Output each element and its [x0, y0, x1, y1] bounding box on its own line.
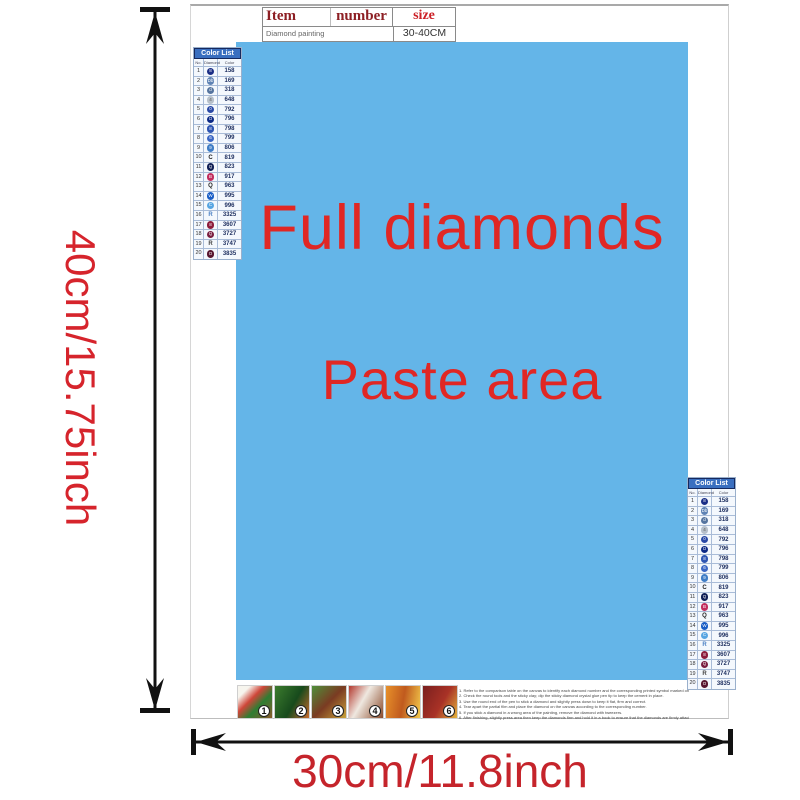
color-row-number: 7	[688, 555, 698, 564]
item-table-col-size: size	[393, 8, 455, 26]
diamond-color-dot-icon: O	[207, 116, 215, 124]
color-row-symbol-cell: Q	[204, 182, 218, 191]
canvas-sheet: Item number size Diamond painting 30-40C…	[190, 4, 729, 719]
color-row-code: 3747	[712, 671, 735, 677]
color-row-symbol-cell: Db	[698, 507, 712, 516]
color-list-col-color: Color	[218, 59, 241, 66]
step-thumbnail-image: 1	[237, 685, 273, 719]
color-row-number: 3	[194, 86, 204, 95]
item-table-col-number: number	[331, 8, 393, 26]
color-list-row: 12 B 917	[194, 173, 241, 183]
diamond-color-dot-icon: Q	[207, 231, 215, 239]
color-list-row: 7 8 798	[688, 555, 735, 565]
step-thumbnail-image: 4	[348, 685, 384, 719]
diamond-color-dot-icon: Db	[701, 507, 709, 515]
color-list-title: Color List	[194, 48, 241, 59]
color-list-row: 13 Q 963	[194, 182, 241, 192]
color-row-symbol-cell: R	[204, 240, 218, 249]
color-list-col-diamond: Diamond	[204, 59, 218, 66]
color-row-number: 10	[688, 583, 698, 592]
color-list-row: 5 0 792	[688, 535, 735, 545]
color-row-code: 3747	[218, 241, 241, 247]
color-row-symbol-cell: O	[698, 679, 712, 689]
step-number-badge: 3	[332, 705, 344, 717]
paste-area-title: Full diamonds	[236, 192, 688, 264]
color-row-symbol-cell: d	[204, 86, 218, 95]
color-row-number: 9	[194, 144, 204, 153]
diamond-color-dot-icon: 9	[207, 144, 215, 152]
diamond-symbol-letter: R	[208, 241, 212, 247]
color-row-number: 18	[688, 660, 698, 669]
diamond-color-dot-icon: 8	[701, 651, 709, 659]
color-row-number: 9	[688, 574, 698, 583]
color-row-symbol-cell: 8	[204, 67, 218, 76]
color-list-row: 20 O 3835	[194, 249, 241, 259]
color-list-columns: No. Diamond Color	[194, 59, 241, 67]
color-row-number: 3	[688, 516, 698, 525]
color-row-code: 3835	[712, 681, 735, 687]
color-row-code: 169	[218, 78, 241, 84]
color-row-code: 963	[218, 183, 241, 189]
color-row-symbol-cell: C	[204, 153, 218, 162]
color-row-code: 823	[218, 164, 241, 170]
color-row-symbol-cell: W	[204, 192, 218, 201]
color-row-number: 6	[194, 115, 204, 124]
color-row-symbol-cell: Db	[204, 77, 218, 86]
color-row-number: 19	[688, 670, 698, 679]
color-row-number: 15	[688, 631, 698, 640]
color-row-symbol-cell: Q	[698, 660, 712, 669]
color-row-symbol-cell: 9	[698, 574, 712, 583]
color-row-code: 819	[218, 155, 241, 161]
diamond-color-dot-icon: 0	[701, 536, 709, 544]
diamond-color-dot-icon: O	[207, 250, 215, 258]
color-list-row: 11 Q 823	[688, 593, 735, 603]
step-number-badge: 5	[406, 705, 418, 717]
color-list-col-diamond: Diamond	[698, 489, 712, 496]
color-list-row: 1 8 158	[688, 497, 735, 507]
instruction-text-block: 1. Refer to the comparison table on the …	[459, 688, 689, 721]
paste-area: Full diamonds Paste area	[236, 42, 688, 680]
step-thumbnail-image: 2	[274, 685, 310, 719]
color-row-code: 3727	[712, 661, 735, 667]
step-number-badge: 4	[369, 705, 381, 717]
diamond-color-dot-icon: O	[701, 546, 709, 554]
color-list-row: 14 W 995	[688, 622, 735, 632]
color-list-row: 2 Db 169	[194, 77, 241, 87]
color-list-row: 6 O 796	[688, 545, 735, 555]
color-row-symbol-cell: R	[204, 211, 218, 220]
color-row-code: 169	[712, 508, 735, 514]
color-row-symbol-cell: 8	[698, 497, 712, 506]
diamond-color-dot-icon: 4	[207, 96, 215, 104]
color-row-code: 917	[218, 174, 241, 180]
color-row-number: 13	[688, 612, 698, 621]
color-row-number: 11	[194, 163, 204, 172]
item-table-header: Item number size	[263, 8, 455, 27]
color-row-code: 3607	[218, 222, 241, 228]
color-row-symbol-cell: C	[204, 201, 218, 210]
color-row-number: 1	[194, 67, 204, 76]
color-row-code: 995	[218, 193, 241, 199]
diamond-color-dot-icon: 6	[701, 565, 709, 573]
color-list-row: 4 4 648	[194, 96, 241, 106]
diamond-symbol-letter: C	[208, 155, 212, 161]
color-row-code: 158	[712, 498, 735, 504]
color-row-number: 4	[688, 526, 698, 535]
color-list-row: 17 8 3607	[688, 651, 735, 661]
diamond-color-dot-icon: B	[701, 603, 709, 611]
diamond-color-dot-icon: Q	[701, 593, 709, 601]
diamond-symbol-letter: C	[702, 585, 706, 591]
color-row-code: 806	[712, 575, 735, 581]
color-row-number: 14	[194, 192, 204, 201]
diamond-color-dot-icon: d	[701, 517, 709, 525]
color-row-symbol-cell: R	[698, 641, 712, 650]
item-table-row: Diamond painting 30-40CM	[263, 27, 455, 41]
color-list-row: 18 Q 3727	[688, 660, 735, 670]
color-row-symbol-cell: R	[698, 670, 712, 679]
step-thumbnail-image: 5	[385, 685, 421, 719]
color-row-symbol-cell: W	[698, 622, 712, 631]
step-number-badge: 1	[258, 705, 270, 717]
color-row-code: 819	[712, 585, 735, 591]
color-row-number: 5	[688, 535, 698, 544]
color-row-symbol-cell: 8	[698, 651, 712, 660]
color-list-row: 11 Q 823	[194, 163, 241, 173]
diamond-color-dot-icon: 9	[701, 574, 709, 582]
color-row-number: 20	[194, 249, 204, 259]
color-list-row: 9 9 806	[194, 144, 241, 154]
color-list-col-no: No.	[688, 489, 698, 496]
color-list-row: 9 9 806	[688, 574, 735, 584]
item-table-col-item: Item	[263, 8, 331, 26]
color-row-symbol-cell: 0	[698, 535, 712, 544]
color-row-code: 823	[712, 594, 735, 600]
diamond-color-dot-icon: C	[207, 202, 215, 210]
color-list-columns: No. Diamond Color	[688, 489, 735, 497]
color-row-code: 318	[218, 87, 241, 93]
color-list-row: 18 Q 3727	[194, 230, 241, 240]
color-row-code: 318	[712, 517, 735, 523]
paste-area-subtitle: Paste area	[236, 347, 688, 412]
diamond-color-dot-icon: 6	[207, 135, 215, 143]
color-row-number: 20	[688, 679, 698, 689]
color-row-number: 4	[194, 96, 204, 105]
color-row-code: 792	[712, 537, 735, 543]
color-row-symbol-cell: 6	[698, 564, 712, 573]
color-row-code: 806	[218, 145, 241, 151]
color-list-row: 8 6 799	[688, 564, 735, 574]
color-list-row: 10 C 819	[688, 583, 735, 593]
color-row-code: 648	[218, 97, 241, 103]
diamond-color-dot-icon: Db	[207, 77, 215, 85]
color-row-symbol-cell: O	[204, 249, 218, 259]
color-row-code: 792	[218, 107, 241, 113]
diamond-color-dot-icon: 4	[701, 526, 709, 534]
color-row-code: 996	[218, 203, 241, 209]
color-list-row: 5 0 792	[194, 105, 241, 115]
color-list-rows: 1 8 158 2 Db 169	[194, 67, 241, 259]
color-row-number: 17	[688, 651, 698, 660]
color-row-code: 3727	[218, 231, 241, 237]
item-name-value: Diamond painting	[263, 27, 393, 41]
color-row-code: 158	[218, 68, 241, 74]
color-row-number: 8	[194, 134, 204, 143]
diamond-symbol-letter: R	[702, 671, 706, 677]
color-list-row: 12 B 917	[688, 603, 735, 613]
color-row-code: 3607	[712, 652, 735, 658]
color-row-number: 8	[688, 564, 698, 573]
color-list-row: 17 8 3607	[194, 221, 241, 231]
step-thumbnail-image: 6	[422, 685, 458, 719]
color-row-number: 16	[688, 641, 698, 650]
color-row-code: 648	[712, 527, 735, 533]
color-row-code: 3835	[218, 251, 241, 257]
diamond-symbol-letter: R	[208, 212, 212, 218]
diamond-color-dot-icon: B	[207, 173, 215, 181]
color-list-title: Color List	[688, 478, 735, 489]
color-list-row: 19 R 3747	[688, 670, 735, 680]
color-row-number: 12	[194, 173, 204, 182]
diamond-color-dot-icon: 8	[207, 68, 215, 76]
color-row-code: 798	[218, 126, 241, 132]
color-list-row: 13 Q 963	[688, 612, 735, 622]
color-row-code: 3325	[218, 212, 241, 218]
step-number-badge: 6	[443, 705, 455, 717]
diamond-color-dot-icon: W	[701, 622, 709, 630]
color-list-row: 16 R 3325	[688, 641, 735, 651]
color-list-row: 3 d 318	[688, 516, 735, 526]
instruction-line: 6. After finishing, slightly press area …	[459, 715, 689, 720]
color-row-symbol-cell: 8	[204, 221, 218, 230]
color-row-symbol-cell: 4	[698, 526, 712, 535]
color-list-row: 15 C 996	[688, 631, 735, 641]
color-list-col-no: No.	[194, 59, 204, 66]
color-list-row: 14 W 995	[194, 192, 241, 202]
color-row-number: 10	[194, 153, 204, 162]
color-list-row: 4 4 648	[688, 526, 735, 536]
height-dimension-label: 40cm/15.75inch	[56, 230, 104, 527]
color-list-row: 2 Db 169	[688, 507, 735, 517]
color-row-code: 917	[712, 604, 735, 610]
color-row-symbol-cell: 9	[204, 144, 218, 153]
item-info-table: Item number size Diamond painting 30-40C…	[262, 7, 456, 42]
color-row-number: 7	[194, 125, 204, 134]
color-list-row: 3 d 318	[194, 86, 241, 96]
vertical-dimension-arrow	[133, 0, 177, 724]
step-thumbnail-image: 3	[311, 685, 347, 719]
color-row-number: 1	[688, 497, 698, 506]
color-row-number: 16	[194, 211, 204, 220]
color-list-row: 20 O 3835	[688, 679, 735, 689]
color-row-code: 963	[712, 613, 735, 619]
diamond-color-dot-icon: d	[207, 87, 215, 95]
diamond-symbol-letter: Q	[208, 183, 213, 189]
color-row-symbol-cell: 8	[698, 555, 712, 564]
diamond-color-dot-icon: 8	[701, 498, 709, 506]
color-list-row: 6 O 796	[194, 115, 241, 125]
diamond-color-dot-icon: C	[701, 632, 709, 640]
color-row-symbol-cell: O	[204, 115, 218, 124]
color-row-symbol-cell: B	[698, 603, 712, 612]
color-row-symbol-cell: 8	[204, 125, 218, 134]
color-list-table-right: Color List No. Diamond Color 1 8 158 2	[687, 477, 736, 690]
diamond-color-dot-icon: O	[701, 680, 709, 688]
item-size-value: 30-40CM	[393, 27, 455, 41]
color-row-code: 796	[218, 116, 241, 122]
width-dimension-label: 30cm/11.8inch	[250, 744, 630, 798]
color-row-number: 17	[194, 221, 204, 230]
color-row-number: 11	[688, 593, 698, 602]
step-thumbnails: 1 2 3 4 5 6	[237, 685, 458, 719]
color-list-row: 1 8 158	[194, 67, 241, 77]
color-row-code: 995	[712, 623, 735, 629]
diamond-color-dot-icon: Q	[207, 163, 215, 171]
color-row-symbol-cell: Q	[698, 612, 712, 621]
color-row-symbol-cell: O	[698, 545, 712, 554]
color-row-symbol-cell: Q	[204, 230, 218, 239]
color-row-number: 15	[194, 201, 204, 210]
color-row-code: 799	[218, 135, 241, 141]
color-row-symbol-cell: B	[204, 173, 218, 182]
color-row-number: 2	[688, 507, 698, 516]
color-list-table-left: Color List No. Diamond Color 1 8 158 2	[193, 47, 242, 260]
diamond-color-dot-icon: 8	[701, 555, 709, 563]
color-row-code: 796	[712, 546, 735, 552]
color-row-number: 14	[688, 622, 698, 631]
color-row-number: 12	[688, 603, 698, 612]
color-list-row: 15 C 996	[194, 201, 241, 211]
color-list-rows: 1 8 158 2 Db 169	[688, 497, 735, 689]
diamond-color-dot-icon: 8	[207, 125, 215, 133]
color-row-symbol-cell: 6	[204, 134, 218, 143]
color-list-col-color: Color	[712, 489, 735, 496]
color-row-symbol-cell: Q	[204, 163, 218, 172]
diamond-color-dot-icon: 0	[207, 106, 215, 114]
color-list-row: 16 R 3325	[194, 211, 241, 221]
color-row-symbol-cell: 0	[204, 105, 218, 114]
color-row-number: 19	[194, 240, 204, 249]
color-row-number: 13	[194, 182, 204, 191]
step-number-badge: 2	[295, 705, 307, 717]
color-row-symbol-cell: 4	[204, 96, 218, 105]
diamond-color-dot-icon: 8	[207, 221, 215, 229]
diamond-color-dot-icon: W	[207, 192, 215, 200]
diamond-color-dot-icon: Q	[701, 661, 709, 669]
color-row-number: 18	[194, 230, 204, 239]
color-row-code: 799	[712, 565, 735, 571]
color-row-symbol-cell: Q	[698, 593, 712, 602]
color-row-number: 6	[688, 545, 698, 554]
color-row-number: 5	[194, 105, 204, 114]
color-row-code: 996	[712, 633, 735, 639]
color-row-symbol-cell: d	[698, 516, 712, 525]
product-dimension-diagram: { "dimensions": { "height_label": "40cm/…	[0, 0, 800, 800]
color-row-number: 2	[194, 77, 204, 86]
color-list-row: 19 R 3747	[194, 240, 241, 250]
color-row-symbol-cell: C	[698, 631, 712, 640]
diamond-symbol-letter: R	[702, 642, 706, 648]
color-row-code: 798	[712, 556, 735, 562]
color-row-symbol-cell: C	[698, 583, 712, 592]
color-list-row: 7 8 798	[194, 125, 241, 135]
color-row-code: 3325	[712, 642, 735, 648]
color-list-row: 10 C 819	[194, 153, 241, 163]
color-list-row: 8 6 799	[194, 134, 241, 144]
diamond-symbol-letter: Q	[702, 613, 707, 619]
